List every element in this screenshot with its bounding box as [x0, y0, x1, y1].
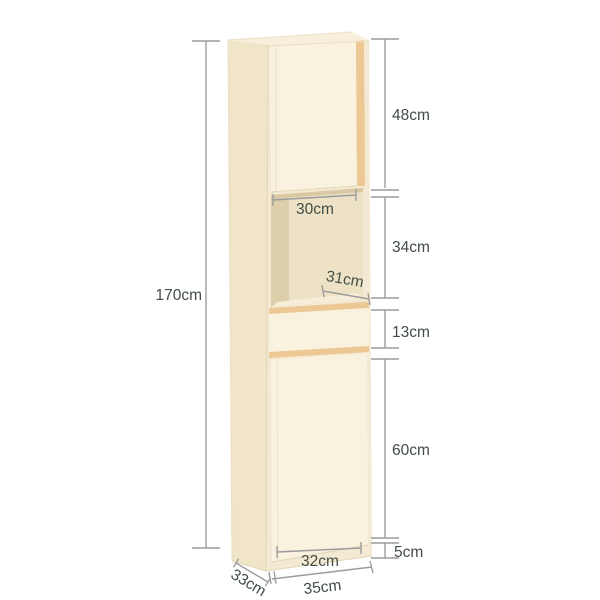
- drawer-front: [269, 308, 369, 352]
- cabinet-dimension-diagram: 170cm 48cm 34cm 13cm 60cm 5cm 30cm 31cm …: [0, 0, 600, 600]
- bottom-door-height-label: 60cm: [392, 442, 430, 459]
- cabinet-side-panel: [228, 40, 268, 571]
- drawer-height-label: 13cm: [392, 324, 430, 341]
- top-door-wood-trim: [356, 40, 365, 186]
- bottom-door: [271, 353, 368, 562]
- product-dimension-image: 170cm 48cm 34cm 13cm 60cm 5cm 30cm 31cm …: [0, 0, 600, 600]
- top-door: [270, 41, 357, 192]
- cabinet-depth-label: 33cm: [228, 566, 269, 600]
- door-width-label: 32cm: [301, 553, 339, 570]
- cabinet-illustration: [228, 32, 372, 571]
- base-height-label: 5cm: [394, 544, 423, 561]
- niche-width-label: 30cm: [296, 201, 334, 218]
- total-height-label: 170cm: [155, 287, 202, 304]
- cabinet-width-label: 35cm: [303, 577, 343, 598]
- top-door-height-label: 48cm: [392, 107, 430, 124]
- niche-height-label: 34cm: [392, 239, 430, 256]
- niche-left-wall: [271, 195, 289, 308]
